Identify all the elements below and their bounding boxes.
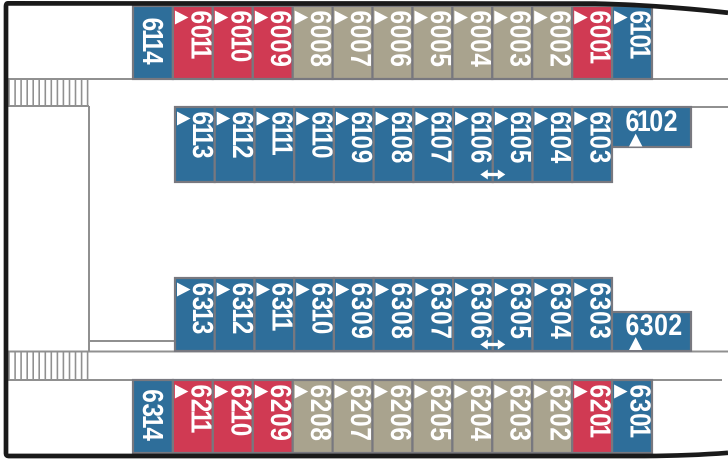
svg-text:6301: 6301	[624, 385, 656, 439]
svg-text:6114: 6114	[136, 18, 168, 65]
svg-text:6102: 6102	[626, 104, 678, 138]
svg-text:6101: 6101	[624, 11, 656, 60]
svg-text:6314: 6314	[136, 389, 168, 441]
svg-text:6302: 6302	[626, 308, 683, 342]
